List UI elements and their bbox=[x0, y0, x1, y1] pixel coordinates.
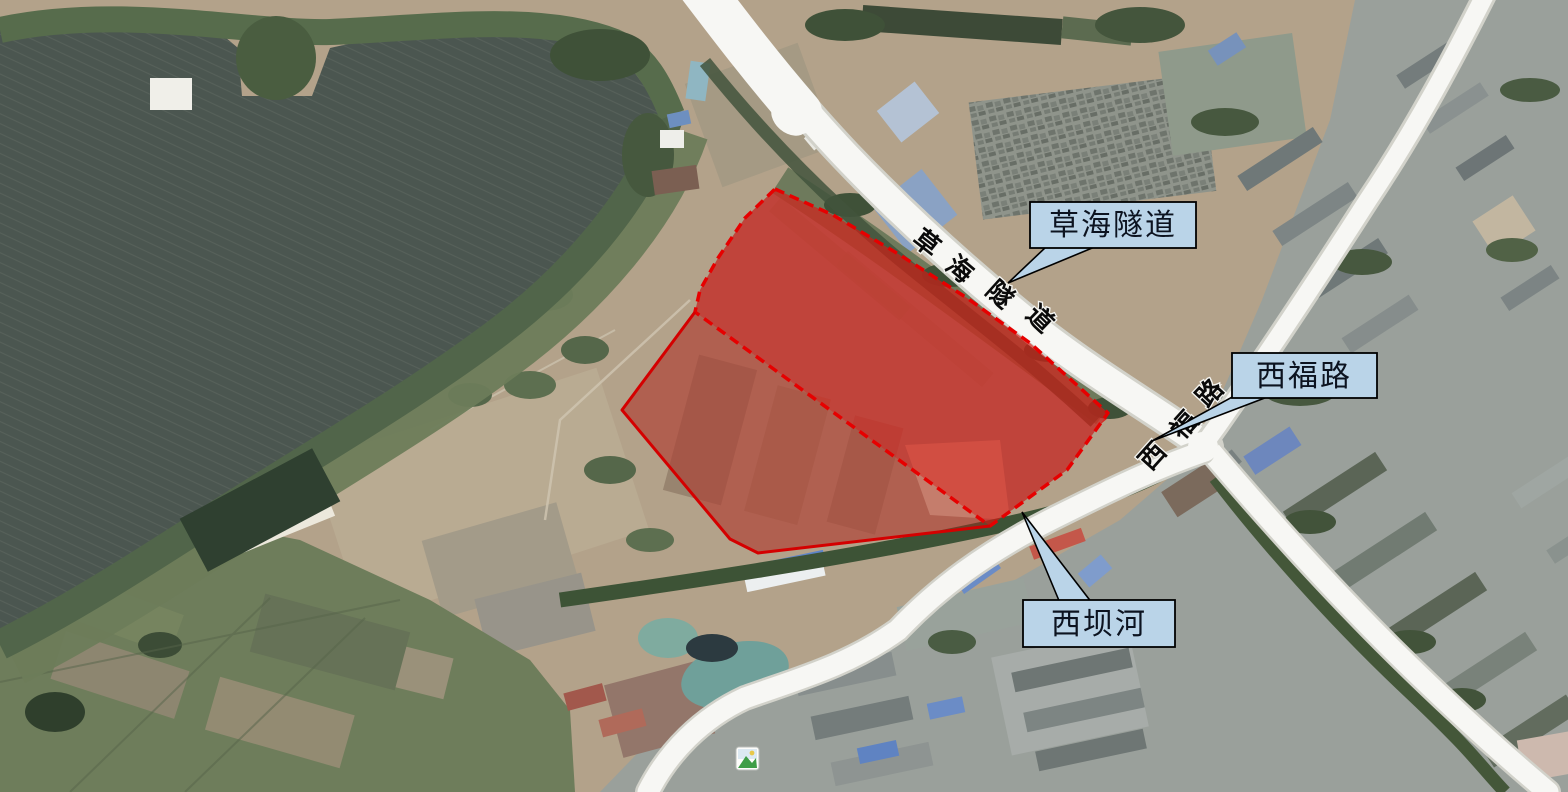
map-canvas: 草 海 隧 道 西 福 路 草海隧道 西福路 西坝河 bbox=[0, 0, 1568, 792]
callout-xifu-road-label: 西福路 bbox=[1256, 360, 1352, 393]
callout-xibahe-river-label: 西坝河 bbox=[1051, 608, 1147, 641]
photo-marker-icon[interactable] bbox=[736, 747, 759, 770]
callout-caohai-tunnel-label: 草海隧道 bbox=[1049, 209, 1177, 242]
